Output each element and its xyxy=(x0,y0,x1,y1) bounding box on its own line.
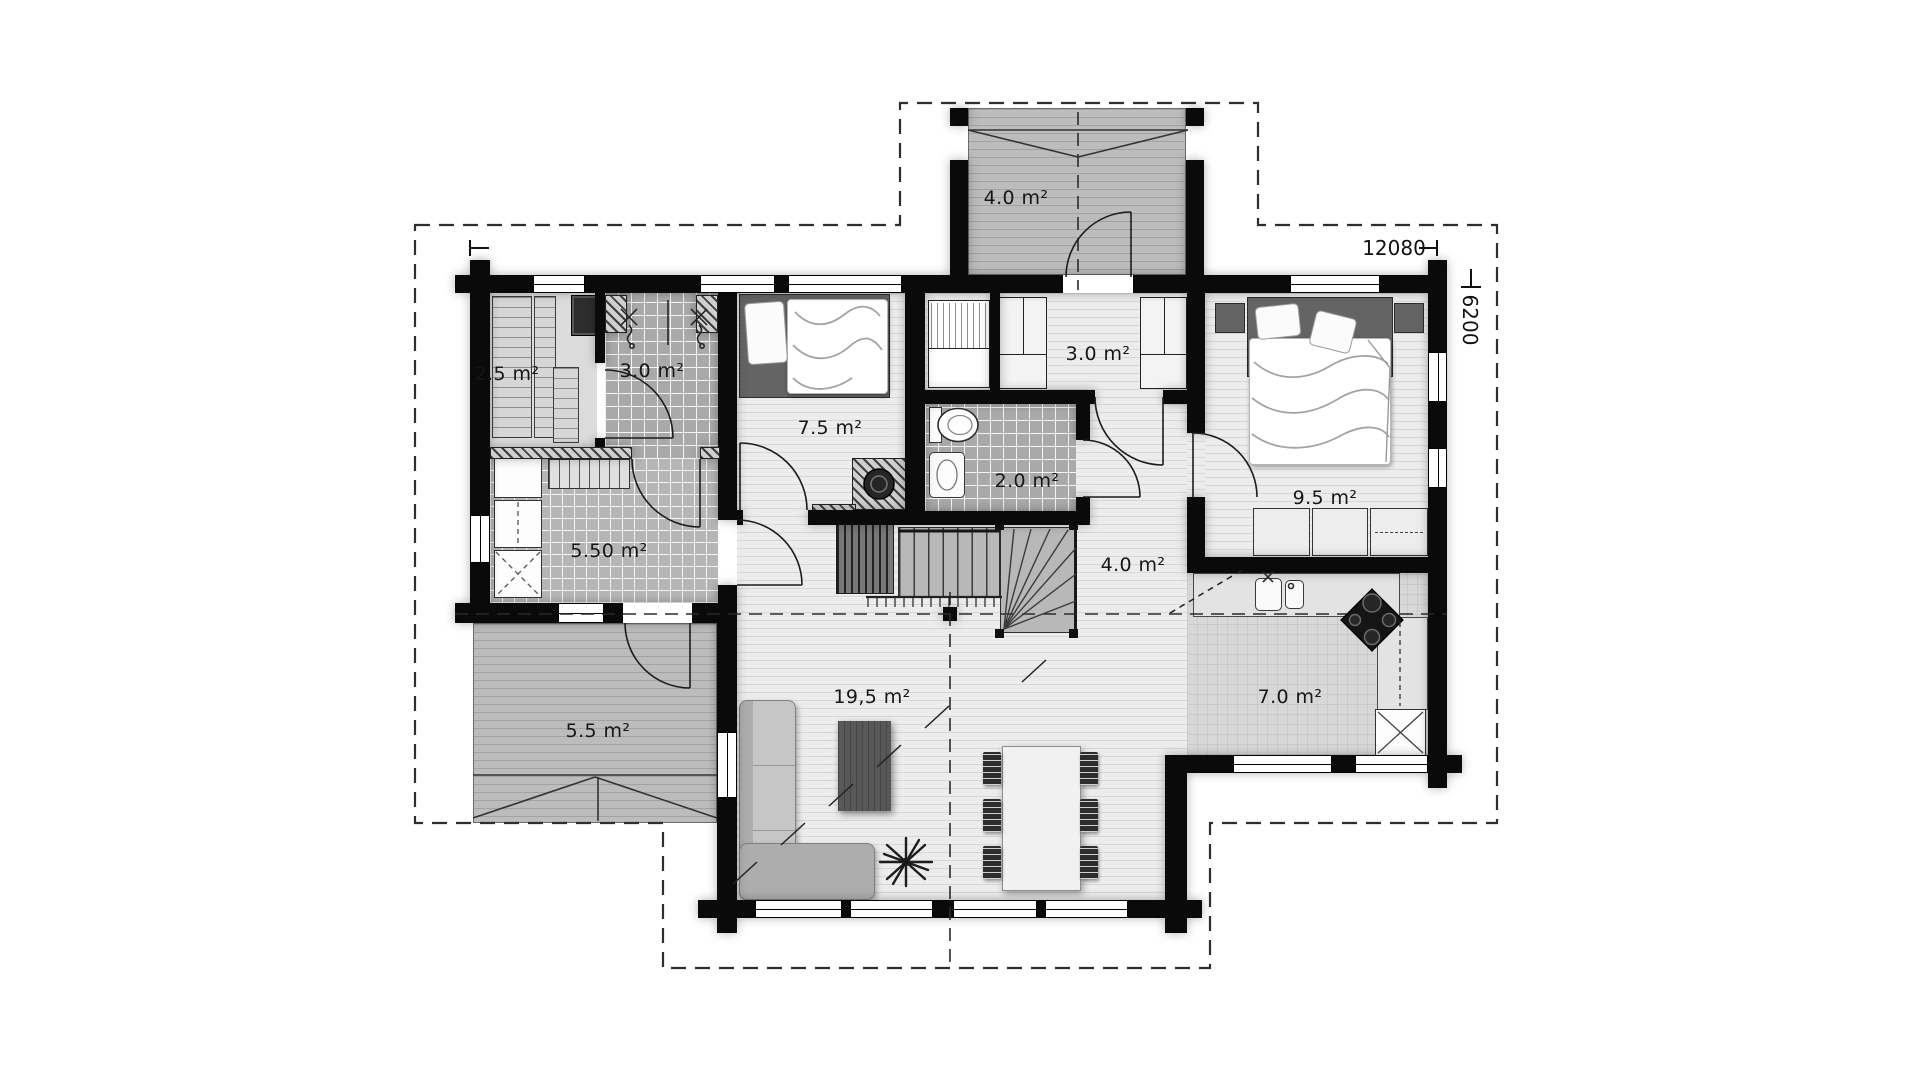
appliance-symbols xyxy=(496,502,540,596)
plant-icon xyxy=(880,838,932,886)
diagonal-ticks xyxy=(733,569,1400,884)
faucet-icon xyxy=(1263,572,1294,589)
plan-linework xyxy=(0,0,1920,1080)
room-label-living: 19,5 m² xyxy=(833,686,910,708)
roof-overhang-outline xyxy=(415,103,1497,968)
dimension-ticks xyxy=(470,240,1481,287)
terrace-canopy-lines xyxy=(473,775,717,821)
cooktop xyxy=(1341,589,1403,651)
axis-lines xyxy=(455,112,1447,966)
dimension-depth: 6200 xyxy=(1458,295,1482,346)
room-label-utility: 5.50 m² xyxy=(570,540,647,562)
room-label-kitchen: 7.0 m² xyxy=(1258,686,1323,708)
bed-linen-pattern xyxy=(793,307,1390,462)
toilet-icon xyxy=(937,409,978,491)
room-label-terrace: 5.5 m² xyxy=(566,720,631,742)
fireplace-flue xyxy=(864,469,894,499)
room-label-bedroom-master: 9.5 m² xyxy=(1293,487,1358,509)
room-label-bedroom-small: 7.5 m² xyxy=(798,417,863,439)
floor-plan-canvas: 2.5 m² 3.0 m² 7.5 m² 3.0 m² 2.0 m² 5.50 … xyxy=(0,0,1920,1080)
room-label-porch: 4.0 m² xyxy=(984,187,1049,209)
dimension-width: 12080 xyxy=(1362,236,1426,260)
door-arcs xyxy=(605,212,1257,688)
room-label-wc: 2.0 m² xyxy=(995,470,1060,492)
room-label-sauna: 2.5 m² xyxy=(475,363,540,385)
room-label-hall: 4.0 m² xyxy=(1101,554,1166,576)
room-label-entry: 3.0 m² xyxy=(1066,343,1131,365)
fridge-symbol xyxy=(1378,712,1423,753)
room-label-shower: 3.0 m² xyxy=(620,360,685,382)
shower-head-icons xyxy=(621,300,707,348)
